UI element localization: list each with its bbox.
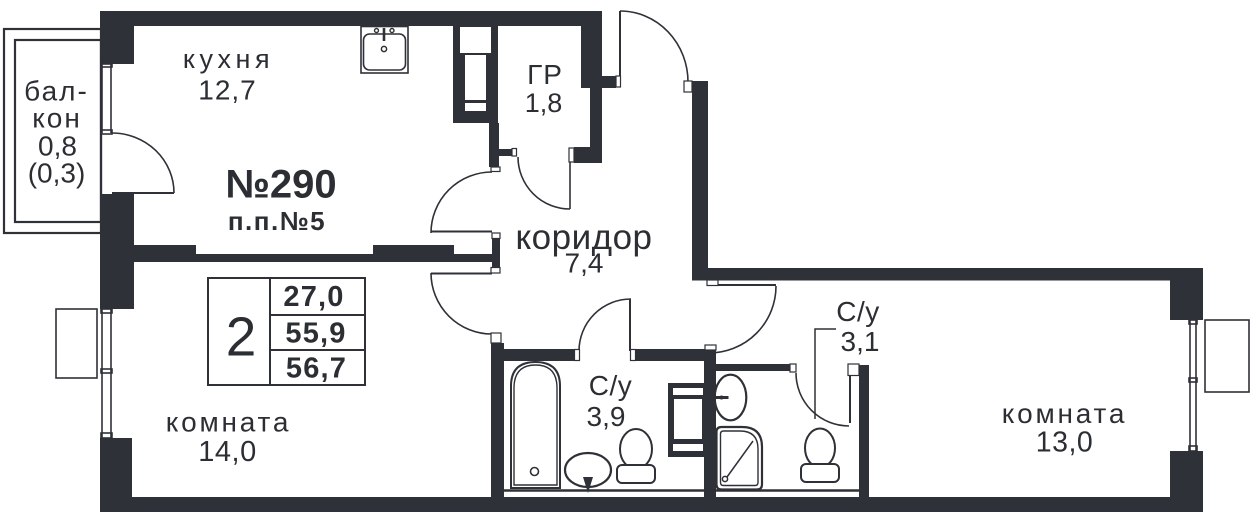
- svg-text:1,8: 1,8: [525, 88, 563, 118]
- svg-text:56,7: 56,7: [286, 353, 347, 385]
- svg-text:№290: №290: [225, 163, 336, 207]
- svg-text:14,0: 14,0: [198, 436, 256, 468]
- svg-text:кухня: кухня: [183, 44, 274, 74]
- svg-text:(0,3): (0,3): [28, 158, 86, 189]
- svg-text:27,0: 27,0: [283, 281, 344, 313]
- svg-text:С/у: С/у: [836, 296, 880, 327]
- svg-text:55,9: 55,9: [285, 318, 346, 350]
- svg-text:ГР: ГР: [527, 59, 563, 90]
- svg-text:комната: комната: [166, 407, 292, 438]
- svg-text:3,9: 3,9: [587, 401, 626, 432]
- svg-text:12,7: 12,7: [198, 75, 257, 106]
- svg-text:п.п.№5: п.п.№5: [228, 206, 326, 236]
- svg-text:2: 2: [226, 306, 257, 368]
- svg-text:комната: комната: [1002, 398, 1128, 429]
- svg-text:3,1: 3,1: [841, 326, 880, 357]
- svg-text:С/у: С/у: [589, 370, 633, 401]
- svg-text:кон: кон: [32, 103, 82, 134]
- svg-text:13,0: 13,0: [1036, 427, 1093, 459]
- svg-text:7,4: 7,4: [565, 248, 604, 279]
